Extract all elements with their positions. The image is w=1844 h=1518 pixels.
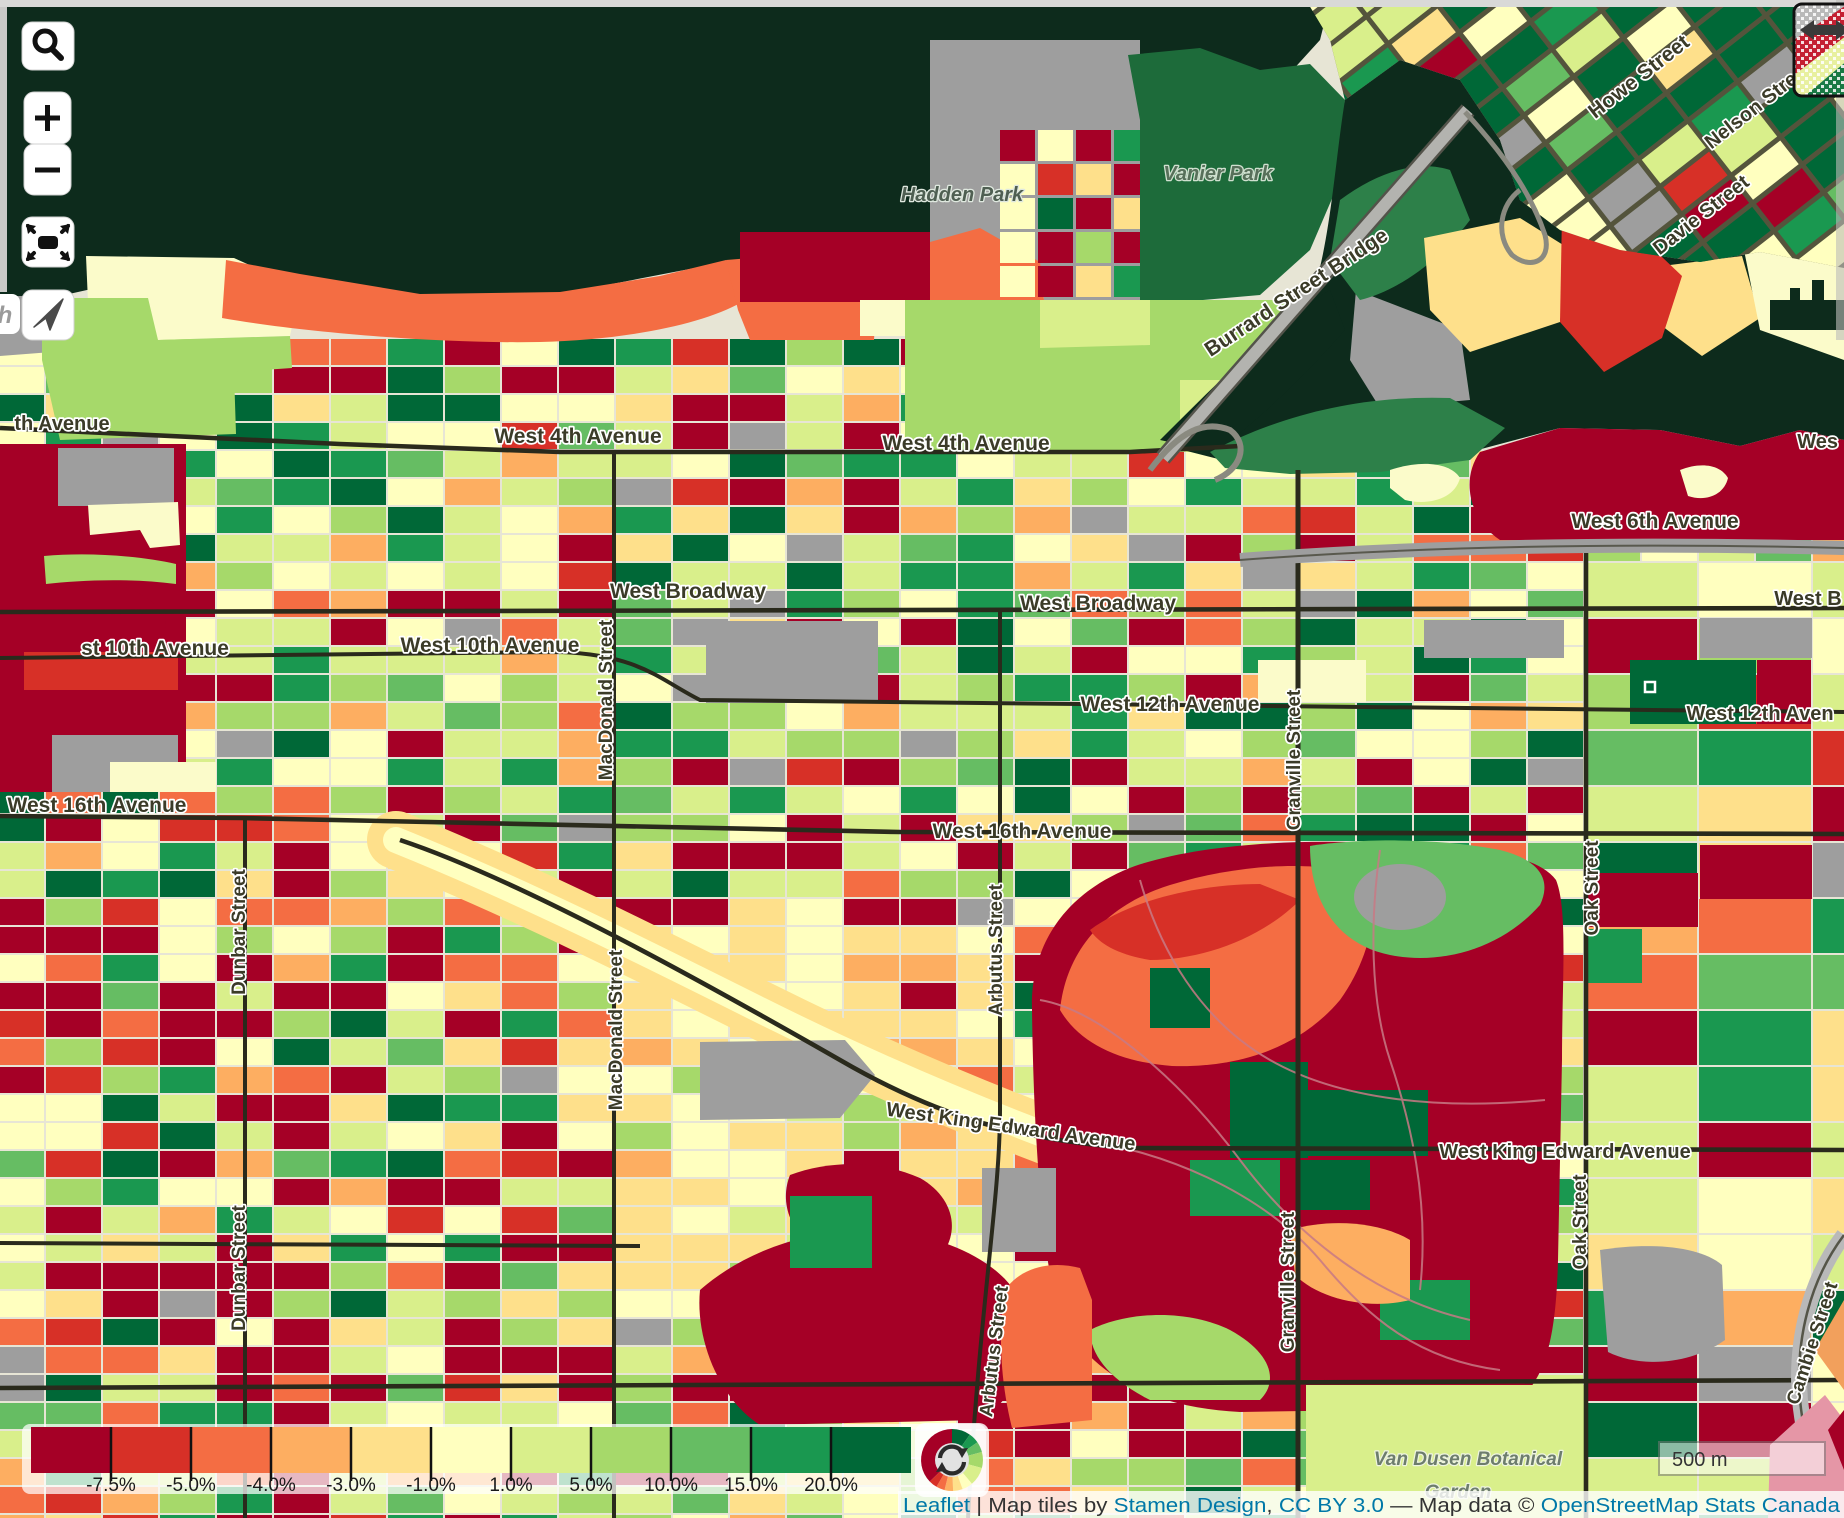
svg-text:Vanier Park: Vanier Park (1163, 163, 1273, 185)
svg-text:5.0%: 5.0% (569, 1475, 612, 1496)
svg-text:-4.0%: -4.0% (246, 1475, 296, 1496)
svg-text:500 m: 500 m (1672, 1449, 1728, 1471)
svg-text:West Broadway: West Broadway (610, 580, 766, 603)
svg-text:West Broadway: West Broadway (1020, 592, 1176, 615)
svg-text:Dunbar Street: Dunbar Street (229, 1205, 250, 1331)
svg-text:West 4th Avenue: West 4th Avenue (882, 432, 1049, 455)
svg-text:West King Edward Avenue: West King Edward Avenue (1439, 1141, 1691, 1163)
svg-text:Arbutus Street: Arbutus Street (986, 883, 1007, 1016)
svg-text:MacDonald Street: MacDonald Street (596, 619, 617, 780)
svg-text:West 12th Avenue: West 12th Avenue (1081, 693, 1260, 716)
svg-text:West 16th Avenue: West 16th Avenue (8, 794, 187, 817)
svg-text:West 16th Avenue: West 16th Avenue (933, 820, 1112, 843)
svg-text:Leaflet | Map tiles by Stamen: Leaflet | Map tiles by Stamen Design, CC… (903, 1495, 1841, 1517)
svg-text:15.0%: 15.0% (724, 1475, 778, 1496)
svg-text:West 10th Avenue: West 10th Avenue (401, 634, 580, 657)
svg-text:-3.0%: -3.0% (326, 1475, 376, 1496)
svg-text:1.0%: 1.0% (489, 1475, 532, 1496)
svg-text:MacDonald Street: MacDonald Street (606, 949, 627, 1110)
svg-text:-7.5%: -7.5% (86, 1475, 136, 1496)
svg-text:West 6th Avenue: West 6th Avenue (1571, 510, 1738, 533)
svg-text:West 12th Aven: West 12th Aven (1686, 703, 1833, 725)
svg-text:Oak Street: Oak Street (1582, 840, 1603, 936)
svg-text:h: h (0, 302, 12, 329)
svg-text:West B: West B (1774, 588, 1841, 610)
svg-text:Wes: Wes (1797, 431, 1838, 453)
svg-text:Hadden Park: Hadden Park (901, 184, 1024, 206)
svg-text:st 10th Avenue: st 10th Avenue (81, 637, 229, 660)
svg-text:th Avenue: th Avenue (14, 413, 109, 435)
svg-text:-5.0%: -5.0% (166, 1475, 216, 1496)
svg-text:-1.0%: -1.0% (406, 1475, 456, 1496)
svg-text:Granville Street: Granville Street (1278, 1211, 1299, 1352)
svg-text:10.0%: 10.0% (644, 1475, 698, 1496)
svg-text:20.0%: 20.0% (804, 1475, 858, 1496)
svg-text:Oak Street: Oak Street (1570, 1174, 1591, 1270)
svg-text:Dunbar Street: Dunbar Street (229, 869, 250, 995)
svg-text:West 4th Avenue: West 4th Avenue (494, 425, 661, 448)
svg-text:Granville Street: Granville Street (1284, 689, 1305, 830)
svg-text:Van Dusen Botanical: Van Dusen Botanical (1374, 1449, 1563, 1470)
